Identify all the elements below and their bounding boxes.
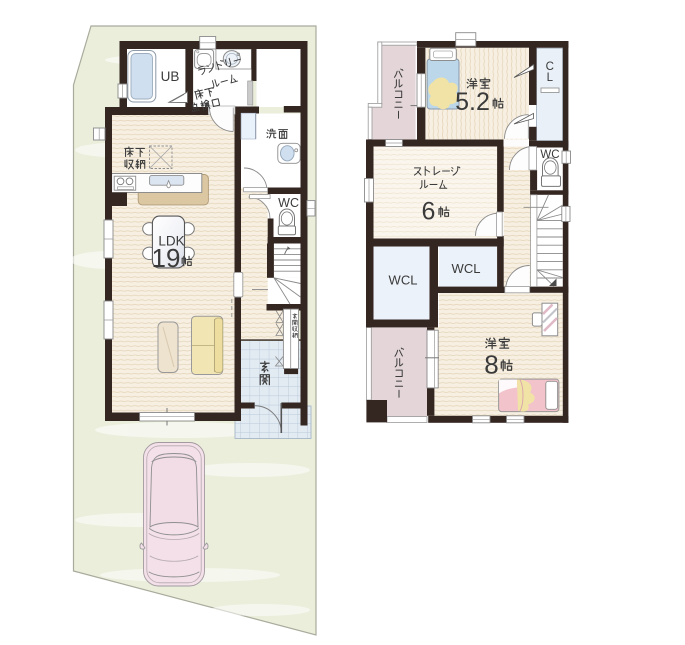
svg-text:6: 6 — [422, 198, 436, 226]
svg-text:WC: WC — [278, 196, 299, 210]
svg-text:8: 8 — [484, 350, 498, 380]
svg-text:19: 19 — [152, 243, 181, 273]
svg-text:WCL: WCL — [452, 261, 481, 276]
svg-text:WC: WC — [540, 149, 559, 161]
svg-text:L: L — [547, 72, 554, 84]
svg-text:5.2: 5.2 — [455, 88, 490, 116]
svg-text:UB: UB — [161, 69, 180, 84]
svg-text:WCL: WCL — [389, 273, 418, 288]
